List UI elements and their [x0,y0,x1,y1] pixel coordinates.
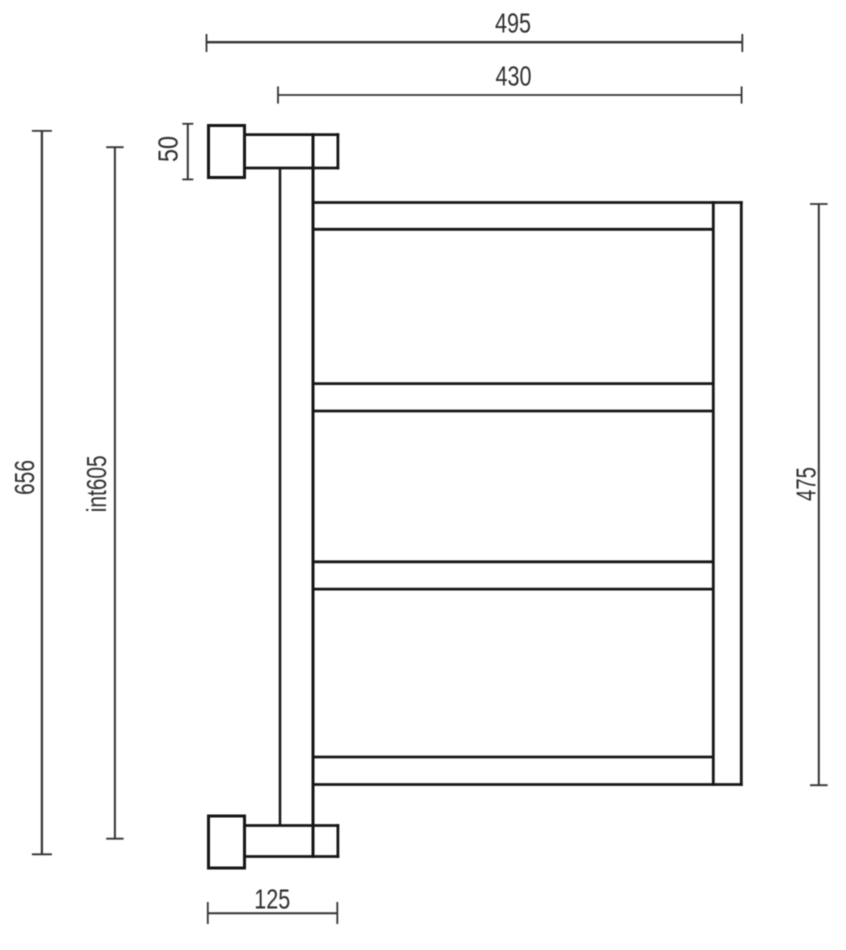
svg-text:656: 656 [9,460,40,495]
svg-text:125: 125 [254,884,290,915]
svg-text:475: 475 [791,467,822,501]
svg-text:495: 495 [495,8,531,39]
svg-text:int605: int605 [81,455,112,512]
svg-text:430: 430 [496,61,532,92]
svg-text:50: 50 [153,136,184,162]
